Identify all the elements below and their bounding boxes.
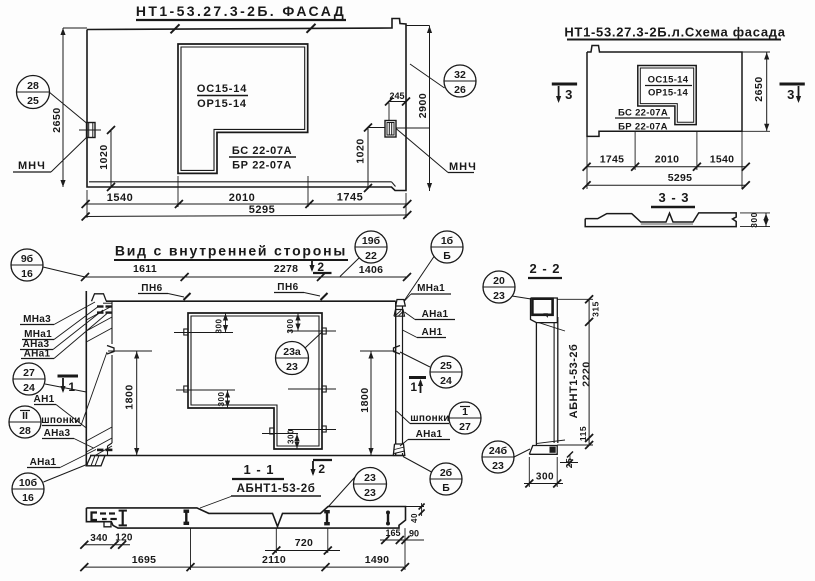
svg-text:3 - 3: 3 - 3 [658,190,689,205]
svg-text:27: 27 [23,367,35,379]
svg-text:БР 22-07А: БР 22-07А [232,160,292,172]
svg-text:АБНТ1-53-2б: АБНТ1-53-2б [568,344,580,419]
svg-text:1540: 1540 [107,192,133,204]
svg-text:АНа3: АНа3 [44,428,71,439]
svg-text:1611: 1611 [133,263,157,275]
svg-text:2900: 2900 [417,93,429,118]
svg-text:10б: 10б [19,477,38,489]
svg-text:19б: 19б [362,235,381,247]
svg-text:АБНТ1-53-2б: АБНТ1-53-2б [237,483,316,495]
svg-text:1б: 1б [441,235,454,247]
svg-text:300: 300 [287,429,296,444]
svg-text:ОР15-14: ОР15-14 [197,98,247,110]
svg-text:23: 23 [493,290,505,302]
svg-text:1: 1 [462,406,468,418]
svg-text:300: 300 [215,319,224,334]
svg-text:1745: 1745 [337,192,363,204]
svg-text:шпонки: шпонки [41,415,80,426]
svg-text:25: 25 [27,95,39,107]
svg-text:БС 22-07А: БС 22-07А [618,108,668,119]
svg-text:Вид с внутренней стороны: Вид с внутренней стороны [115,243,347,259]
svg-text:Б: Б [443,250,451,262]
svg-text:23: 23 [492,460,504,472]
svg-text:28: 28 [27,80,39,92]
svg-text:2: 2 [318,462,325,476]
svg-text:3: 3 [565,87,573,102]
svg-text:115: 115 [578,426,588,441]
svg-text:2б: 2б [440,467,453,479]
svg-text:1745: 1745 [600,154,625,166]
svg-text:ПН6: ПН6 [277,282,298,293]
svg-text:24: 24 [440,375,452,387]
svg-text:2010: 2010 [655,154,680,166]
svg-text:2010: 2010 [229,192,255,204]
svg-text:5295: 5295 [668,172,693,184]
svg-text:9б: 9б [21,253,34,265]
svg-text:5295: 5295 [249,204,275,216]
svg-text:1800: 1800 [359,387,371,412]
svg-text:ОС15-14: ОС15-14 [648,75,689,86]
svg-text:ОР15-14: ОР15-14 [648,88,689,99]
svg-text:300: 300 [286,319,295,334]
svg-text:2220: 2220 [581,361,593,386]
svg-text:1406: 1406 [359,264,384,276]
svg-text:АН1: АН1 [34,394,55,405]
svg-text:НТ1-53.27.3-2Б. ФАСАД: НТ1-53.27.3-2Б. ФАСАД [136,3,346,19]
svg-text:НТ1-53.27.3-2Б.л.Схема фасада: НТ1-53.27.3-2Б.л.Схема фасада [564,25,785,40]
svg-text:25: 25 [440,360,452,372]
svg-text:23: 23 [364,487,376,499]
svg-text:1695: 1695 [132,554,157,566]
svg-text:АНа1: АНа1 [422,309,449,320]
svg-text:300: 300 [536,472,554,483]
svg-text:МНа3: МНа3 [23,314,51,325]
svg-text:БР 22-07А: БР 22-07А [618,122,668,133]
svg-text:24: 24 [23,382,35,394]
svg-text:245: 245 [389,91,404,101]
svg-text:1490: 1490 [365,554,390,566]
svg-text:16: 16 [22,492,34,504]
svg-text:МНа1: МНа1 [417,283,445,294]
svg-text:23: 23 [286,361,298,373]
svg-text:3: 3 [787,87,795,102]
svg-text:340: 340 [90,533,108,544]
svg-text:АН1: АН1 [422,327,443,338]
svg-text:20: 20 [493,275,505,287]
svg-text:26: 26 [454,84,466,96]
svg-text:16: 16 [21,268,33,280]
svg-text:2650: 2650 [753,76,765,101]
svg-text:Б: Б [442,482,450,494]
svg-text:1: 1 [68,380,75,394]
svg-text:шпонки: шпонки [410,413,449,424]
svg-text:28: 28 [19,425,31,437]
svg-text:23: 23 [364,472,376,484]
svg-text:165: 165 [385,528,400,538]
svg-text:ПН6: ПН6 [141,283,162,294]
svg-text:120: 120 [115,533,133,544]
svg-text:2278: 2278 [274,263,299,275]
svg-text:1020: 1020 [355,138,367,163]
svg-text:2 - 2: 2 - 2 [529,261,560,276]
svg-text:300: 300 [749,212,759,228]
svg-text:ОС15-14: ОС15-14 [197,83,247,95]
svg-text:40: 40 [410,513,419,523]
svg-text:МНЧ: МНЧ [18,160,46,172]
svg-text:АНа1: АНа1 [416,429,443,440]
svg-text:90: 90 [409,529,419,539]
svg-text:23а: 23а [283,346,301,358]
svg-text:720: 720 [295,537,313,549]
svg-text:2110: 2110 [262,554,286,566]
svg-text:БС 22-07А: БС 22-07А [232,145,292,157]
svg-text:1540: 1540 [710,154,735,166]
svg-text:22: 22 [365,250,377,262]
svg-text:315: 315 [591,301,601,317]
svg-text:МНЧ: МНЧ [449,161,477,173]
svg-text:25: 25 [564,458,574,468]
svg-text:1800: 1800 [124,384,136,409]
svg-text:1: 1 [410,380,417,394]
svg-text:32: 32 [454,69,466,81]
svg-text:24б: 24б [489,445,508,457]
svg-text:27: 27 [459,421,471,433]
svg-text:1020: 1020 [98,144,110,169]
svg-text:2650: 2650 [51,107,63,132]
svg-text:1 - 1: 1 - 1 [243,462,274,477]
svg-text:АНа1: АНа1 [24,349,51,360]
svg-text:АНа1: АНа1 [30,457,57,468]
svg-text:300: 300 [217,392,226,407]
svg-text:II: II [22,410,28,422]
